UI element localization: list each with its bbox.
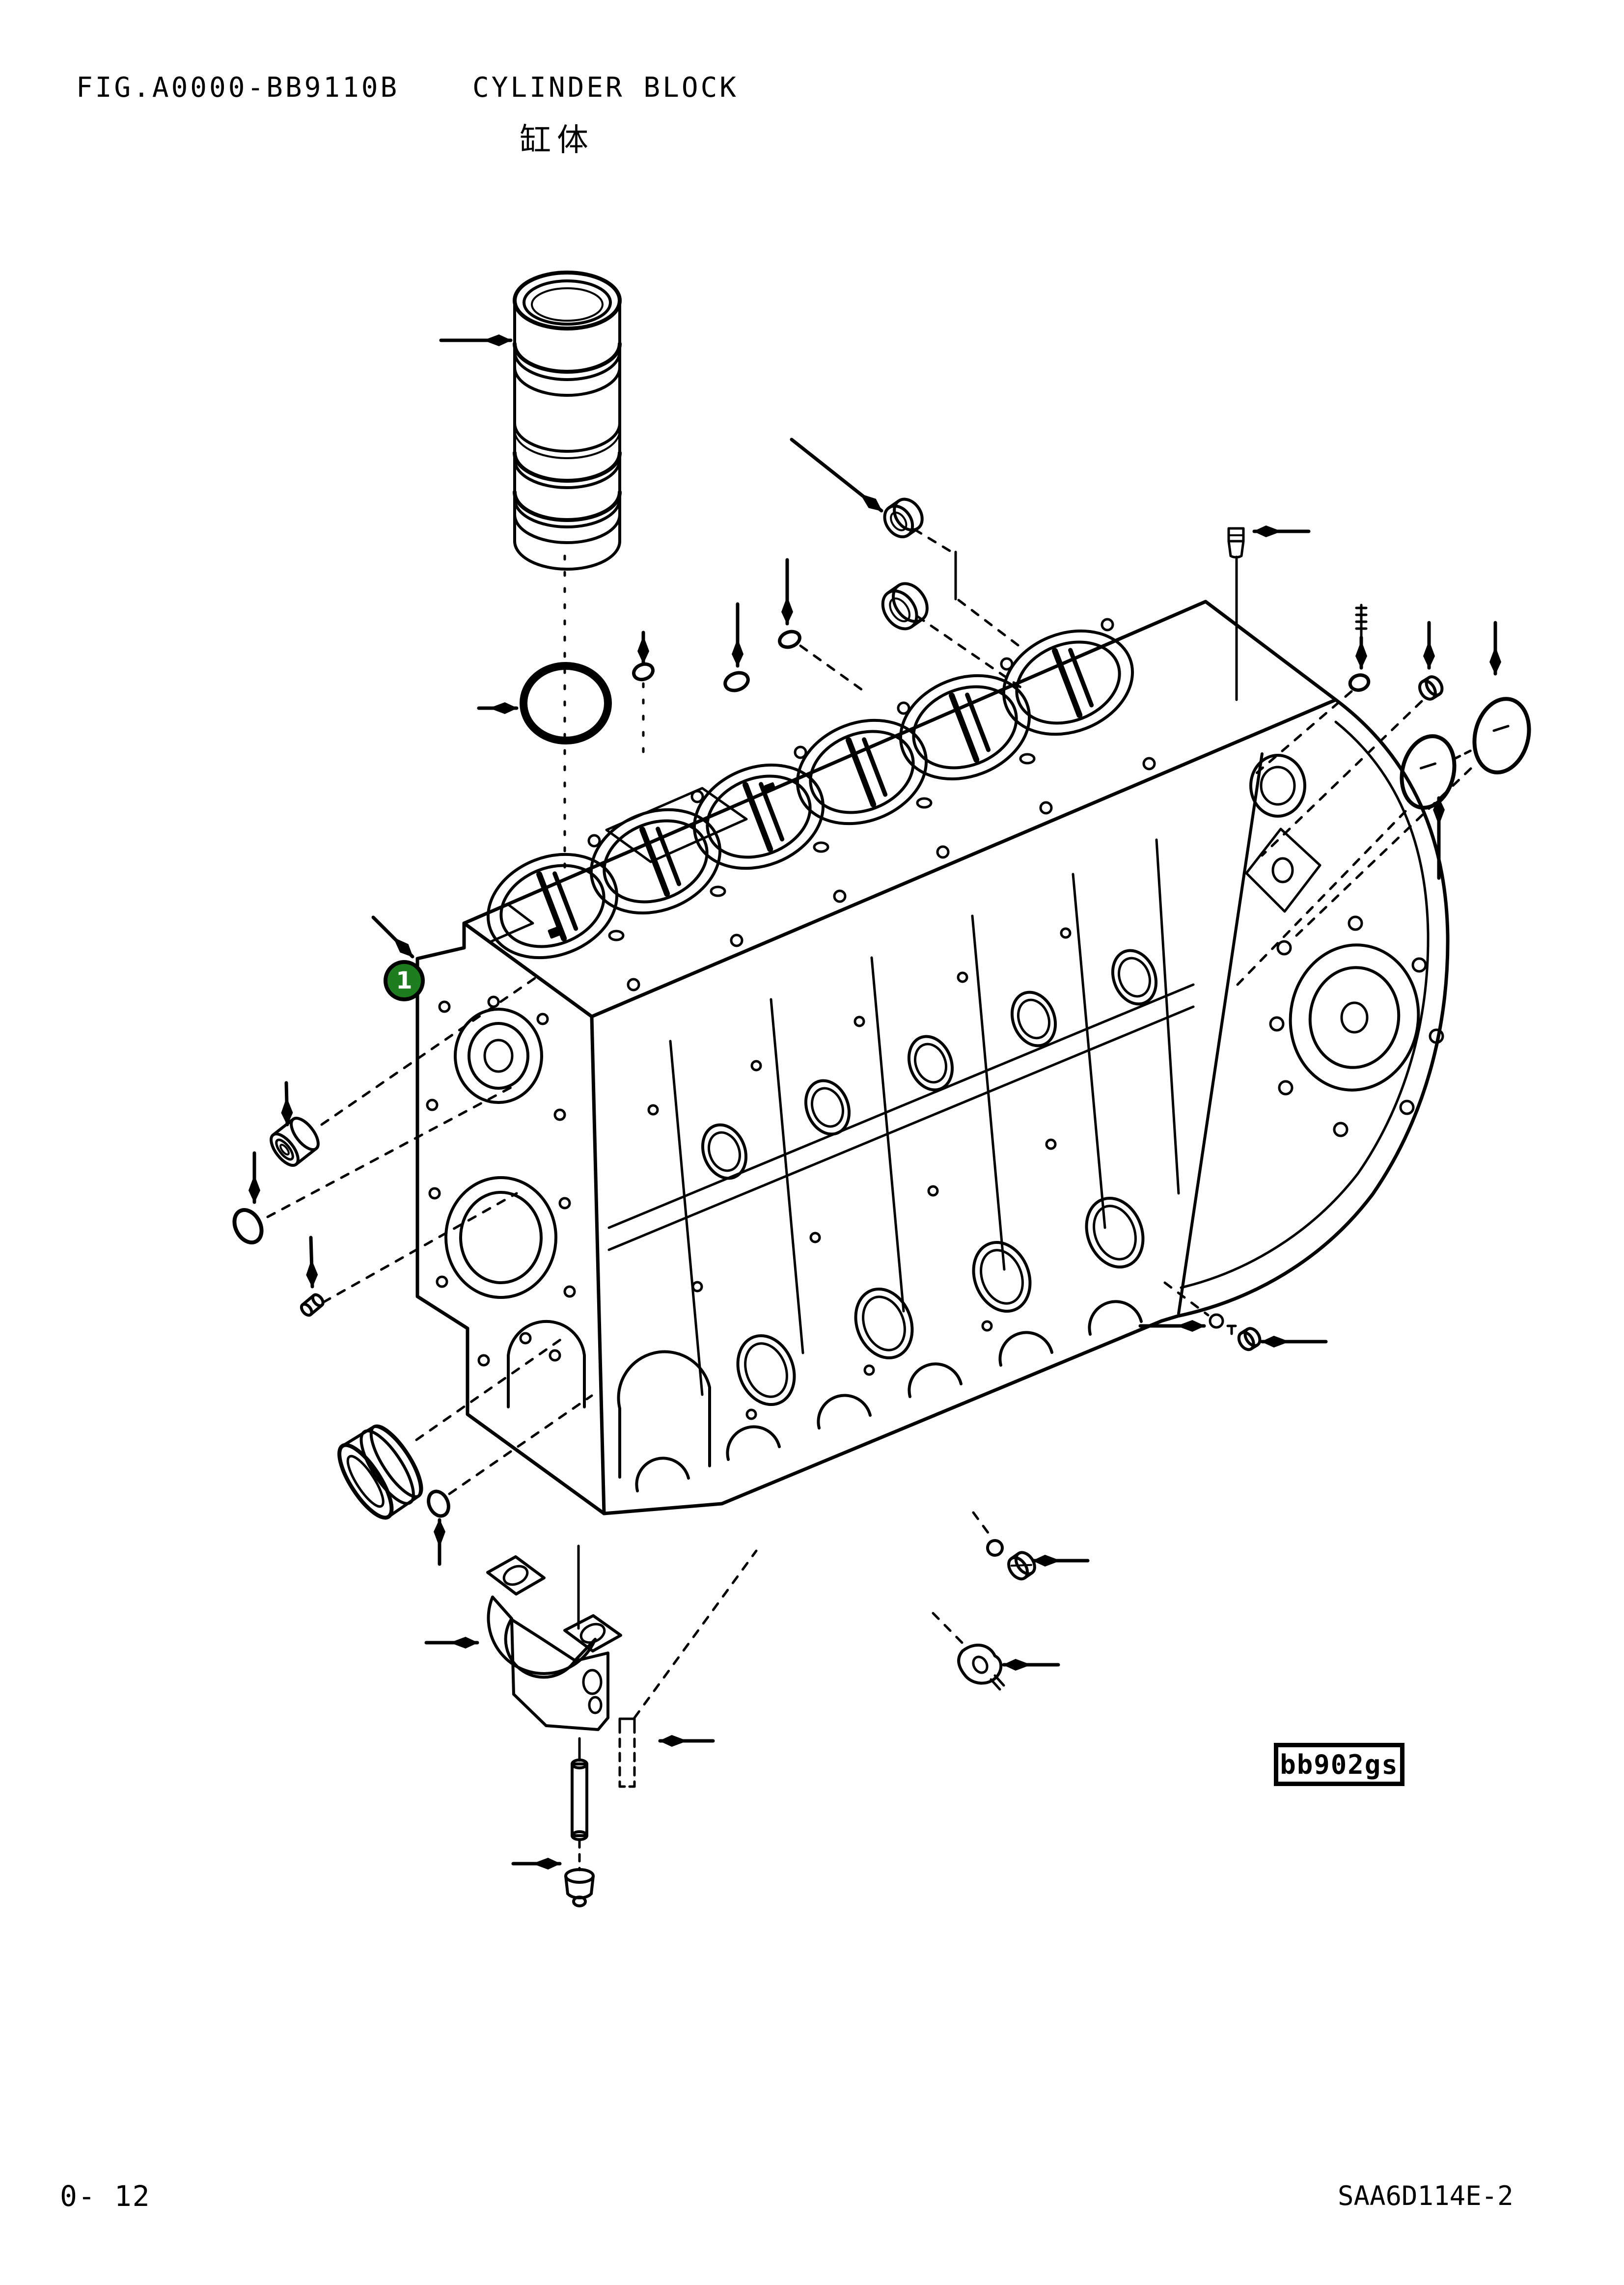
diagram-code-label: bb902gs (1274, 1743, 1404, 1786)
cylinder-liner (515, 273, 620, 569)
part-balloon-1[interactable]: 1 (384, 960, 425, 1001)
bottom-left-cup-plug (330, 1418, 452, 1525)
right-plug-set (1349, 605, 1537, 813)
main-bearing-cap (488, 1546, 621, 1730)
bottom-right-fittings (959, 1541, 1039, 1689)
parts-catalog-page: FIG.A0000-BB9110B CYLINDER BLOCK 缸体 (0, 0, 1624, 2285)
dowel-pin (620, 1719, 634, 1787)
top-cup-plugs (876, 494, 956, 635)
stud-and-bolt (566, 1738, 593, 1906)
block-front-face (427, 997, 584, 1407)
small-orings-top (632, 629, 802, 693)
sensor-plug (1229, 528, 1243, 700)
model-code: SAA6D114E-2 (1338, 2180, 1514, 2211)
callout-arrows (254, 340, 1495, 1864)
left-side-parts (229, 1114, 325, 1317)
exploded-diagram (0, 0, 1624, 2285)
page-number: 0- 12 (60, 2179, 151, 2213)
mid-right-plugs (1210, 1315, 1263, 1352)
block-side-face (609, 840, 1193, 1491)
